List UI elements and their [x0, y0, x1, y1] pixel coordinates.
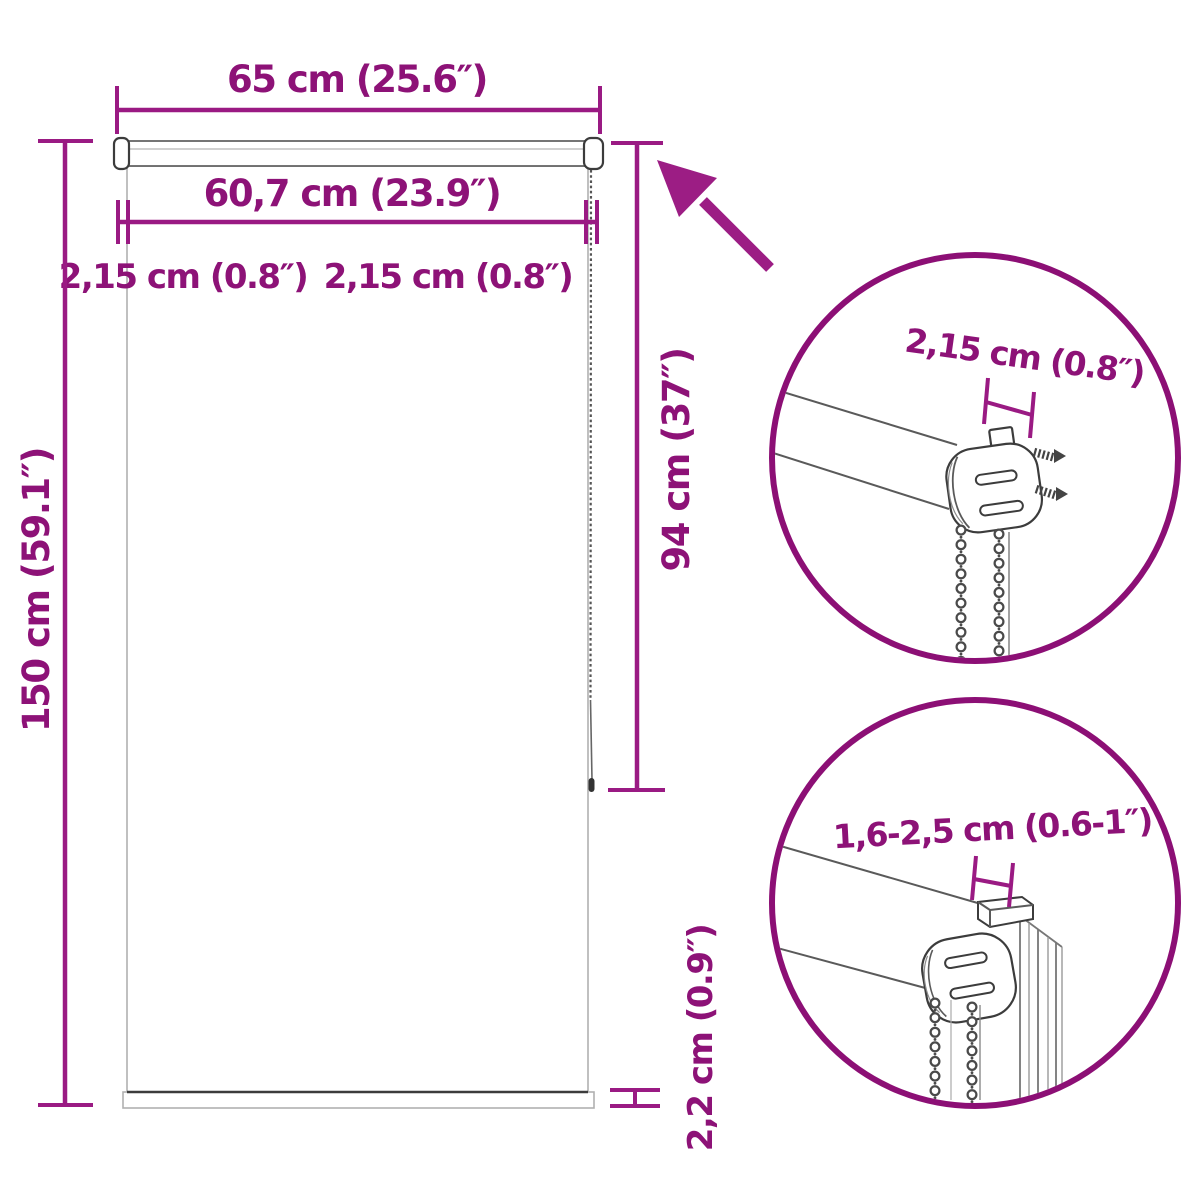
label-total-width: 65 cm (25.6″)	[227, 58, 487, 101]
detail1-tube	[770, 388, 957, 510]
detail-circle-top-content: 2,15 cm (0.8″)	[770, 321, 1147, 670]
dim-chain-length: 94 cm (37″)	[608, 143, 698, 790]
mounting-screw-icon	[1034, 449, 1066, 463]
dim-total-width: 65 cm (25.6″)	[117, 58, 600, 134]
dim-bottom-bar: 2,2 cm (0.9″)	[610, 925, 721, 1152]
label-left-offset: 2,15 cm (0.8″)	[59, 257, 308, 297]
roller-end-cap-left	[114, 138, 129, 169]
detail-circle-bottom-content: 1,6-2,5 cm (0.6-1″)	[770, 801, 1153, 1105]
label-right-offset: 2,15 cm (0.8″)	[324, 257, 573, 297]
detail2-clamp-bracket	[978, 897, 1033, 927]
blind-bottom-bar	[123, 1092, 594, 1108]
detail-circle-top: 2,15 cm (0.8″)	[770, 255, 1178, 670]
label-bottom-bar-height: 2,2 cm (0.9″)	[681, 925, 721, 1152]
label-detail-top-dimension: 2,15 cm (0.8″)	[903, 321, 1147, 393]
blind-fabric-panel	[127, 166, 588, 1092]
detail1-end-cap	[941, 424, 1046, 536]
label-fabric-width: 60,7 cm (23.9″)	[204, 172, 501, 215]
roller-tube	[117, 141, 601, 166]
detail-circle-bottom: 1,6-2,5 cm (0.6-1″)	[770, 700, 1178, 1106]
roller-blind-diagram-canvas: 65 cm (25.6″) 60,7 cm (23.9″) 2,15 cm (0…	[0, 0, 1200, 1200]
detail2-window-frame	[1020, 916, 1062, 1100]
label-total-height: 150 cm (59.1″)	[15, 448, 58, 732]
pull-chain-cord	[591, 700, 593, 780]
pull-chain-clasp	[589, 778, 595, 792]
pull-chain	[591, 170, 592, 700]
roller-end-cap-right	[584, 138, 603, 169]
zoom-arrow-icon	[657, 160, 770, 268]
label-detail-bottom-dimension: 1,6-2,5 cm (0.6-1″)	[832, 801, 1153, 857]
product-dimension-diagram: 65 cm (25.6″) 60,7 cm (23.9″) 2,15 cm (0…	[0, 0, 1200, 1200]
detail1-bead-chain	[961, 530, 1009, 670]
label-chain-length: 94 cm (37″)	[655, 348, 698, 571]
